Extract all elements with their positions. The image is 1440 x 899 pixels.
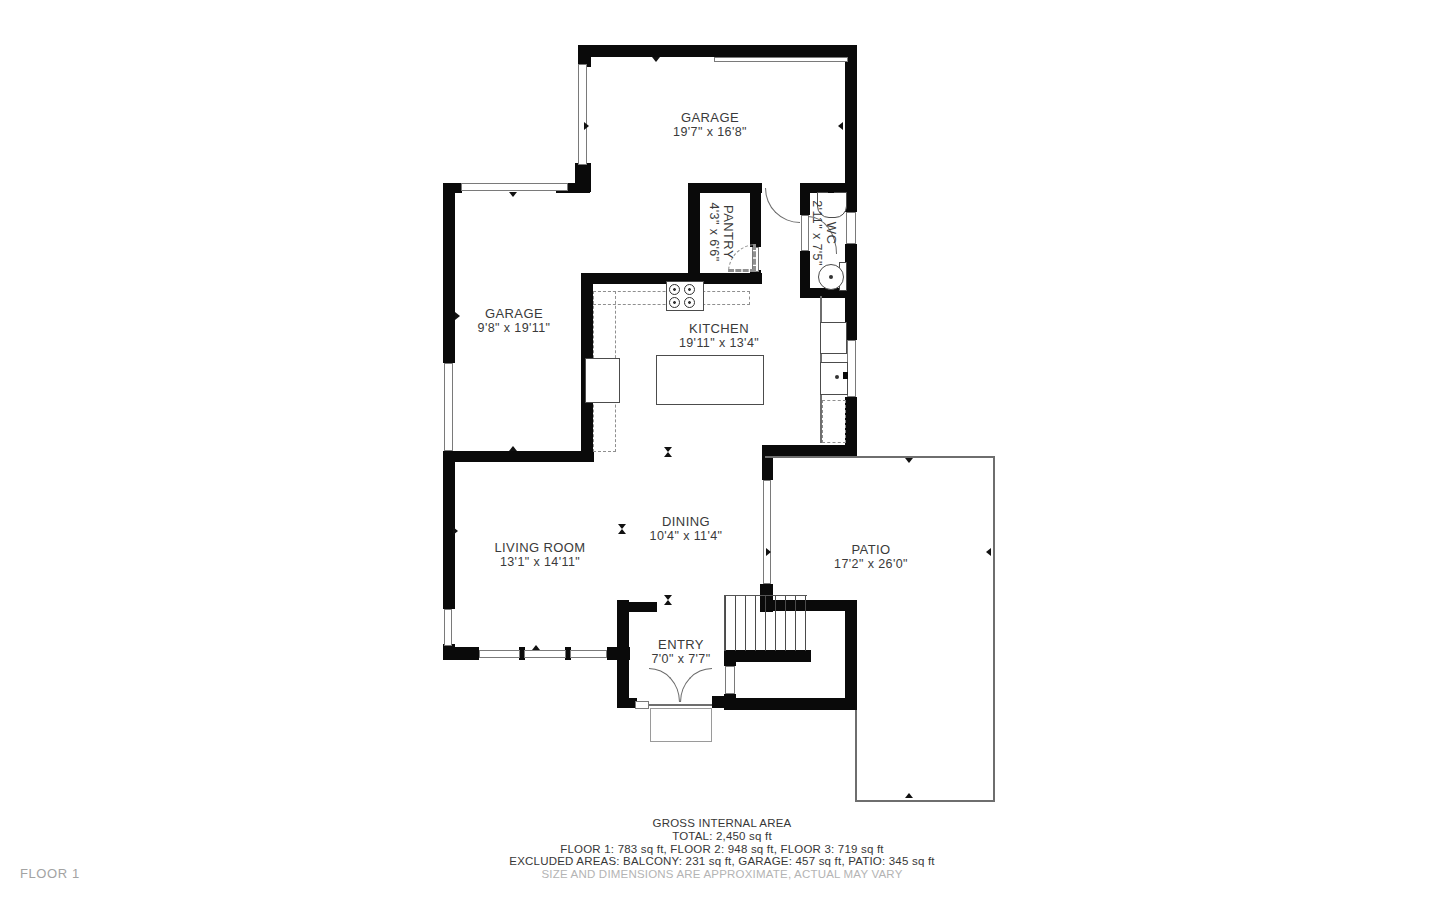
counter-dashed (822, 400, 846, 443)
room-label-patio: PATIO 17'2" x 26'0" (834, 543, 908, 571)
entry-porch (650, 708, 712, 742)
wall (724, 694, 736, 710)
room-dims: 2'11" x 7'5" (810, 200, 824, 265)
garage-door (714, 57, 848, 62)
patio-edge (855, 710, 857, 802)
wall (724, 698, 857, 710)
garage-door (461, 183, 568, 191)
room-label-garage-main: GARAGE 19'7" x 16'8" (673, 111, 747, 139)
floor-plan-canvas: GARAGE 19'7" x 16'8" GARAGE 9'8" x 19'11… (0, 0, 1440, 899)
wall (443, 451, 594, 462)
wall (750, 183, 761, 247)
living-window (570, 650, 607, 658)
wall (845, 600, 857, 710)
room-dims: 4'3" x 6'6" (707, 202, 721, 261)
room-label-entry: ENTRY 7'0" x 7'7" (651, 638, 710, 666)
staircase (724, 595, 807, 651)
summary-title: GROSS INTERNAL AREA (509, 817, 934, 830)
summary-disclaimer: SIZE AND DIMENSIONS ARE APPROXIMATE, ACT… (509, 868, 934, 881)
faucet (843, 372, 848, 379)
stove-burner (669, 297, 680, 308)
wall-marker (509, 446, 517, 451)
room-dims: 9'8" x 19'11" (478, 321, 551, 335)
wall-marker (584, 122, 589, 130)
room-label-kitchen: KITCHEN 19'11" x 13'4" (679, 322, 759, 350)
room-dims: 19'11" x 13'4" (679, 336, 759, 350)
living-window (479, 650, 520, 658)
wc-faucet (828, 189, 834, 193)
area-summary: GROSS INTERNAL AREA TOTAL: 2,450 sq ft F… (509, 817, 934, 881)
wall (724, 650, 811, 662)
room-name: GARAGE (478, 307, 551, 321)
room-name: ENTRY (651, 638, 710, 652)
living-window (444, 609, 452, 646)
kitchen-window (847, 340, 856, 397)
wall (688, 183, 700, 282)
stove-burner (669, 284, 680, 295)
entry-sidelite (635, 701, 649, 709)
wall-marker (509, 192, 517, 197)
living-window (524, 650, 566, 658)
wall (629, 602, 657, 612)
dishwasher (820, 322, 847, 354)
understair-door-opening (725, 666, 735, 694)
room-name: PATIO (834, 543, 908, 557)
refrigerator (585, 358, 620, 403)
wall (617, 600, 629, 708)
room-dims: 7'0" x 7'7" (651, 652, 710, 666)
wall-marker (766, 548, 771, 556)
stove-burner (684, 284, 695, 295)
opening-marker (664, 447, 672, 457)
wall (724, 650, 736, 666)
room-dims: 19'7" x 16'8" (673, 125, 747, 139)
floor-label: FLOOR 1 (20, 866, 80, 881)
wall-marker (905, 793, 913, 798)
wall (800, 183, 810, 215)
kitchen-island (656, 355, 764, 405)
wall-marker (455, 312, 460, 320)
room-label-living-room: LIVING ROOM 13'1" x 14'11" (494, 541, 585, 569)
entry-door-right-arc (680, 668, 712, 702)
wc-window (846, 212, 856, 244)
entry-threshold (649, 704, 712, 706)
room-name: PANTRY (721, 202, 735, 261)
dining-slider-window (763, 480, 771, 584)
summary-total: TOTAL: 2,450 sq ft (509, 830, 934, 843)
wall (443, 183, 455, 363)
summary-excluded: EXCLUDED AREAS: BALCONY: 231 sq ft, GARA… (509, 855, 934, 868)
wall (762, 445, 773, 480)
garage-side-door (444, 363, 453, 451)
entry-door-left-arc (649, 668, 680, 702)
room-name: DINING (650, 515, 723, 529)
wall (443, 647, 479, 660)
patio-edge (993, 456, 995, 802)
wall-marker (905, 458, 913, 463)
opening-marker (618, 524, 626, 534)
opening-marker (664, 595, 672, 605)
wall (617, 698, 637, 708)
room-name: GARAGE (673, 111, 747, 125)
garage-window (578, 64, 587, 165)
stove-burner (684, 297, 695, 308)
wall-marker (838, 122, 843, 130)
room-dims: 13'1" x 14'11" (494, 555, 585, 569)
garage-entry-door-arc (765, 188, 800, 223)
wall (443, 462, 455, 609)
room-label-pantry: PANTRY 4'3" x 6'6" (707, 202, 735, 261)
sink-drain (835, 375, 839, 379)
patio-edge (855, 800, 995, 802)
wall (800, 251, 810, 298)
room-dims: 17'2" x 26'0" (834, 557, 908, 571)
room-name: LIVING ROOM (494, 541, 585, 555)
toilet-drain (829, 275, 833, 279)
wall-marker (453, 527, 458, 535)
room-label-wc: WC 2'11" x 7'5" (810, 200, 838, 265)
room-name: WC (824, 200, 838, 265)
room-name: KITCHEN (679, 322, 759, 336)
wall-marker (652, 57, 660, 62)
patio-edge (765, 456, 995, 458)
room-label-dining: DINING 10'4" x 11'4" (650, 515, 723, 543)
wall (578, 45, 857, 57)
room-dims: 10'4" x 11'4" (650, 529, 723, 543)
room-label-garage-second: GARAGE 9'8" x 19'11" (478, 307, 551, 335)
summary-floors: FLOOR 1: 783 sq ft, FLOOR 2: 948 sq ft, … (509, 843, 934, 856)
wall-marker (532, 645, 540, 650)
wall-marker (986, 548, 991, 556)
